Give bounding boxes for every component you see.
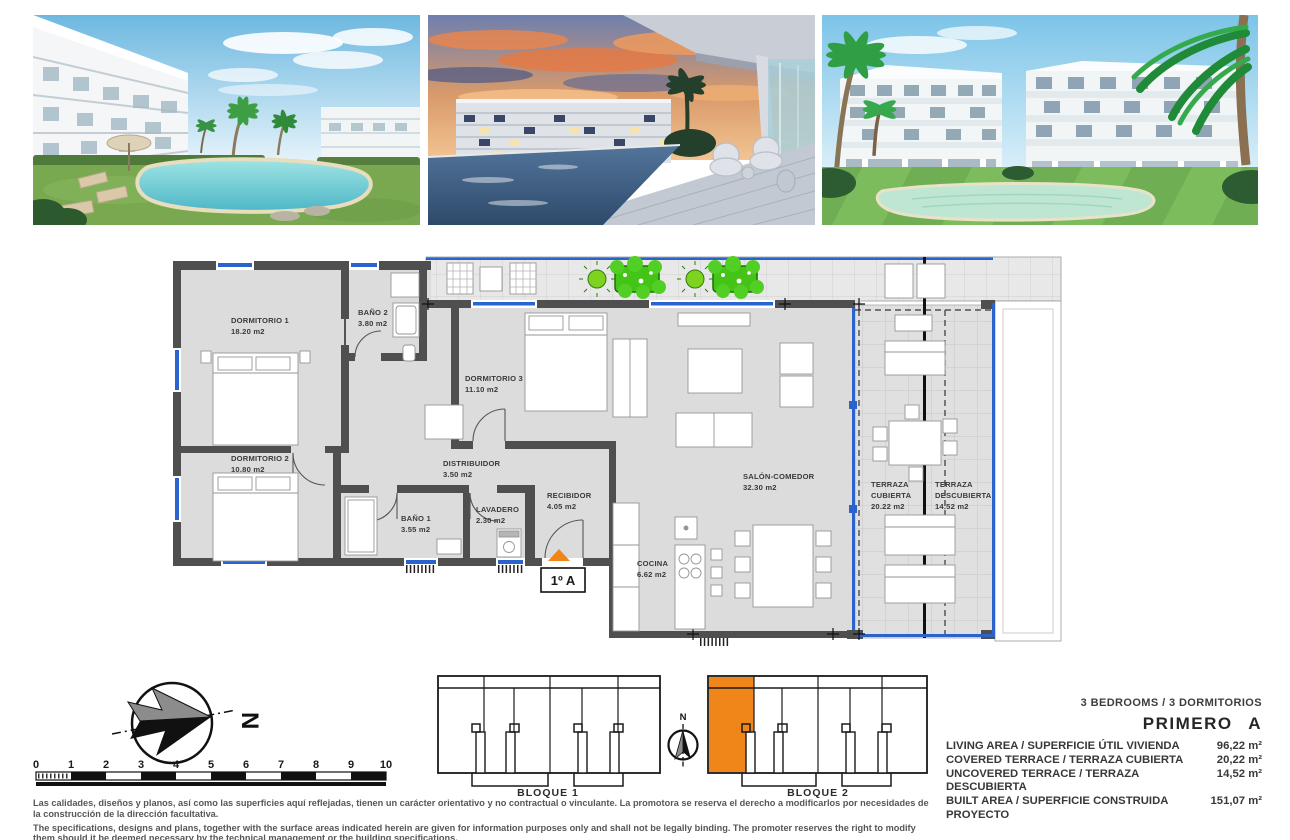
spec-row: COVERED TERRACE / TERRAZA CUBIERTA 20,22…: [946, 754, 1262, 768]
scale-tick: 2: [103, 759, 109, 771]
terrace2-line1: TERRAZA: [935, 480, 973, 489]
room-label-distribuidor: DISTRIBUIDOR: [443, 459, 501, 468]
bedrooms-count: 3 BEDROOMS / 3 DORMITORIOS: [946, 697, 1262, 709]
room-area-recibidor: 4.05 m2: [547, 502, 576, 511]
spec-row: BUILT AREA / SUPERFICIE CONSTRUIDA PROYE…: [946, 795, 1262, 823]
room-area-salon: 32.30 m2: [743, 483, 777, 492]
room-label-dormitorio3: DORMITORIO 3: [465, 374, 523, 383]
scale-bar: 0 1 2 3 4 5 6 7 8 9 10: [28, 756, 408, 790]
scale-tick: 10: [380, 759, 392, 771]
room-label-dormitorio2: DORMITORIO 2: [231, 454, 289, 463]
room-area-dormitorio1: 18.20 m2: [231, 327, 265, 336]
room-area-lavadero: 2.30 m2: [476, 516, 505, 525]
unit-label-box: 1º A: [541, 568, 585, 592]
room-label-dormitorio1: DORMITORIO 1: [231, 316, 290, 325]
brochure-page: 1º A DORMITORIO 1 18.20 m2 BAÑO 2 3.80 m…: [0, 0, 1290, 840]
unit-specifications: 3 BEDROOMS / 3 DORMITORIOS PRIMERO A LIV…: [946, 697, 1262, 823]
side-strip: [995, 301, 1061, 641]
room-area-dormitorio3: 11.10 m2: [465, 385, 498, 394]
spec-label: LIVING AREA / SUPERFICIE ÚTIL VIVIENDA: [946, 740, 1180, 754]
compass-north-letter: N: [236, 712, 263, 729]
render-photo-facade-pool: [822, 15, 1258, 225]
terrace1-line1: TERRAZA: [871, 480, 909, 489]
block-diagram-2: BLOQUE 2: [708, 676, 927, 799]
room-label-salon: SALÓN-COMEDOR: [743, 472, 815, 481]
building-right: [321, 107, 420, 163]
disclaimer-en: The specifications, designs and plans, t…: [33, 823, 933, 840]
scale-tick: 9: [348, 759, 354, 771]
scale-tick: 7: [278, 759, 284, 771]
spec-label: UNCOVERED TERRACE / TERRAZA DESCUBIERTA: [946, 768, 1209, 796]
render-photo-pool-garden: [33, 15, 420, 225]
room-area-dormitorio2: 10.80 m2: [231, 465, 265, 474]
unit-label: 1º A: [551, 573, 576, 588]
spec-value: 14,52 m²: [1209, 768, 1262, 796]
scale-tick: 0: [33, 759, 39, 771]
spec-row: UNCOVERED TERRACE / TERRAZA DESCUBIERTA …: [946, 768, 1262, 796]
block-key-diagrams: BLOQUE 1 N: [430, 666, 935, 802]
room-label-bano1: BAÑO 1: [401, 514, 431, 523]
terrace2-line2: DESCUBIERTA: [935, 491, 992, 500]
spec-label: BUILT AREA / SUPERFICIE CONSTRUIDA PROYE…: [946, 795, 1203, 823]
scale-tick: 1: [68, 759, 74, 771]
scale-ticks: 0 1 2 3 4 5 6 7 8 9 10: [33, 759, 392, 771]
unit-title: PRIMERO A: [946, 714, 1262, 734]
room-label-cocina: COCINA: [637, 559, 668, 568]
spec-value: 96,22 m²: [1209, 740, 1262, 754]
spec-value: 151,07 m²: [1203, 795, 1263, 823]
scale-tick: 4: [173, 759, 180, 771]
legal-disclaimer: Las calidades, diseños y planos, así com…: [33, 798, 933, 840]
decor-vase: [777, 170, 795, 192]
scale-tick: 6: [243, 759, 249, 771]
spec-label: COVERED TERRACE / TERRAZA CUBIERTA: [946, 754, 1183, 768]
terrace1-line2: CUBIERTA: [871, 491, 912, 500]
terrace1-area: 20.22 m2: [871, 502, 905, 511]
scale-tick: 5: [208, 759, 214, 771]
room-label-bano2: BAÑO 2: [358, 308, 388, 317]
scale-tick: 3: [138, 759, 144, 771]
room-area-bano2: 3.80 m2: [358, 319, 387, 328]
disclaimer-es: Las calidades, diseños y planos, así com…: [33, 798, 933, 820]
room-label-lavadero: LAVADERO: [476, 505, 519, 514]
terrace2-area: 14.52 m2: [935, 502, 969, 511]
room-area-cocina: 6.62 m2: [637, 570, 666, 579]
spec-row: LIVING AREA / SUPERFICIE ÚTIL VIVIENDA 9…: [946, 740, 1262, 754]
spec-value: 20,22 m²: [1209, 754, 1262, 768]
floor-plan: 1º A DORMITORIO 1 18.20 m2 BAÑO 2 3.80 m…: [173, 253, 1067, 653]
pool: [137, 159, 370, 212]
scale-tick: 8: [313, 759, 319, 771]
mini-compass-letter: N: [680, 712, 687, 723]
room-label-recibidor: RECIBIDOR: [547, 491, 592, 500]
block-diagram-1: BLOQUE 1: [438, 676, 660, 799]
pool: [877, 184, 1154, 221]
room-area-bano1: 3.55 m2: [401, 525, 430, 534]
render-photo-sunset-terrace: [428, 15, 815, 225]
mini-north-compass: N: [669, 712, 698, 768]
side-table: [742, 167, 754, 179]
building-left: [840, 65, 1002, 175]
room-area-distribuidor: 3.50 m2: [443, 470, 472, 479]
